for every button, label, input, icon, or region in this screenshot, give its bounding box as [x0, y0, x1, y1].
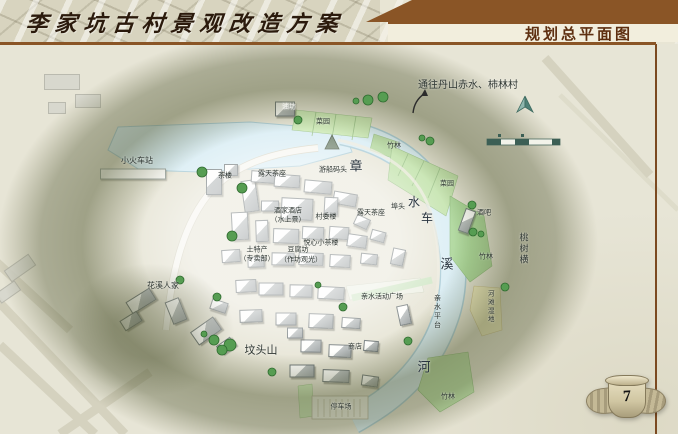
tree-icon [378, 92, 388, 102]
tree-icon [426, 137, 434, 145]
route-arrow-icon [413, 89, 428, 113]
tree-icon [363, 95, 373, 105]
north-arrow-icon [517, 96, 533, 112]
tree-icon [419, 135, 425, 141]
tree-icon [469, 228, 477, 236]
map-overlay [0, 0, 678, 434]
tree-icon [209, 335, 219, 345]
slide-header: 规划总平面图 李家坑古村景观改造方案 [0, 0, 678, 44]
scale-bar [487, 134, 560, 145]
tree-icon [268, 368, 276, 376]
page-title-right: 规划总平面图 [525, 23, 633, 44]
header-rule [0, 42, 656, 45]
header-right-strip: 规划总平面图 [388, 22, 678, 42]
tree-icon [339, 303, 347, 311]
tree-icon [227, 231, 237, 241]
tree-icon [353, 98, 359, 104]
page-number-emblem: 7 [586, 372, 666, 426]
tree-icon [468, 201, 476, 209]
tree-icon [197, 167, 207, 177]
tree-icon [501, 283, 509, 291]
tree-icon [213, 293, 221, 301]
page-number: 7 [609, 387, 646, 407]
tree-icon [217, 345, 227, 355]
header-brown-bar [366, 0, 678, 22]
tree-icon [315, 282, 321, 288]
stone-pot-icon: 7 [608, 378, 646, 418]
tree-icon [176, 276, 184, 284]
slide-page: 通往丹山赤水、柿林村小火车站油坊菜园竹林菜园茶楼露天茶座游船码头埠头露天茶座酒家… [0, 0, 678, 434]
page-title-left: 李家坑古村景观改造方案 [24, 6, 346, 38]
tree-icon [294, 116, 302, 124]
tree-icon [478, 231, 484, 237]
tree-icon [404, 337, 412, 345]
trees-layer [176, 92, 509, 376]
tree-icon [201, 331, 207, 337]
tree-icon [237, 183, 247, 193]
